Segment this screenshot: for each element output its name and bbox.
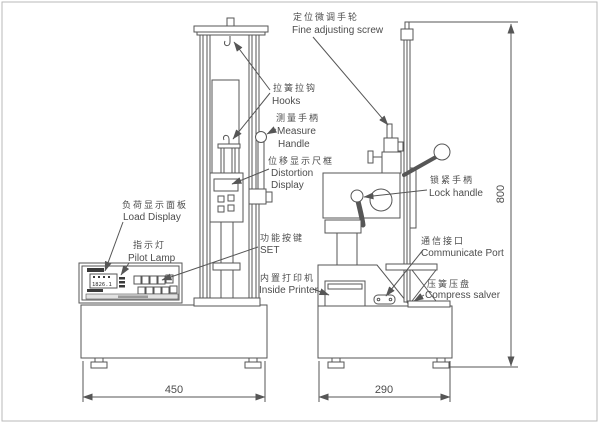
- dim-front-width: 450: [165, 384, 183, 396]
- pilot-lamp-icons: [119, 277, 125, 288]
- label-fine-adjusting-zh: 定位微调手轮: [293, 11, 359, 22]
- load-display-value: 1826.1: [92, 282, 112, 288]
- load-display-screen: 1826.1: [90, 274, 117, 288]
- column-top-collar: [401, 29, 413, 40]
- top-cap-plate: [194, 26, 268, 32]
- lower-spindle-2: [221, 270, 233, 298]
- label-lock-handle-zh: 锁紧手柄: [430, 174, 474, 185]
- load-sensor-cylinder: [221, 148, 235, 173]
- label-inside-printer-zh: 内置打印机: [260, 272, 315, 283]
- top-knob: [227, 18, 234, 26]
- column-rack: [410, 168, 416, 228]
- label-fine-adjusting-en: Fine adjusting screw: [292, 25, 384, 36]
- label-compress-salver-zh: 压簧压盘: [427, 278, 471, 289]
- label-inside-printer-en: Inside Printer: [259, 285, 319, 296]
- printer-slot: [328, 284, 362, 289]
- spindle-cylinder: [337, 233, 357, 265]
- panel-model-label: [87, 289, 103, 292]
- label-compress-salver-en: Compress salver: [425, 290, 501, 301]
- label-distortion-display-en1: Distortion: [271, 168, 313, 179]
- top-cap-lip: [197, 32, 265, 35]
- t-handle[interactable]: [368, 151, 373, 163]
- label-pilot-lamp-en: Pilot Lamp: [128, 253, 176, 264]
- dim-side-width: 290: [375, 384, 393, 396]
- crosshead-plate: [213, 263, 240, 270]
- technical-drawing-page: 1826.1: [0, 0, 600, 424]
- label-load-display-zh: 负荷显示面板: [122, 199, 188, 210]
- distortion-display-screen: [214, 179, 238, 191]
- head-handwheel: [370, 189, 392, 211]
- label-load-display-en: Load Display: [123, 212, 181, 223]
- label-function-keys-zh: 功能按键: [260, 232, 304, 243]
- fine-adjusting-screw-part[interactable]: [387, 124, 392, 138]
- label-measure-handle-en1: Measure: [277, 126, 316, 137]
- side-base: [318, 306, 452, 358]
- label-function-keys-en: SET: [260, 245, 279, 256]
- column-pedestal: [194, 298, 260, 306]
- lower-spindle: [221, 222, 233, 263]
- label-distortion-display-zh: 位移显示尺框: [268, 155, 334, 166]
- label-measure-handle-zh: 测量手柄: [276, 112, 320, 123]
- measure-handle-ball: [256, 132, 267, 143]
- lower-hook-plate: [218, 144, 240, 148]
- label-communicate-port-en: Communicate Port: [421, 248, 504, 259]
- label-lock-handle-en: Lock handle: [429, 188, 483, 199]
- left-column: [200, 35, 210, 298]
- inside-printer-unit: [325, 281, 365, 306]
- control-panel: 1826.1: [79, 263, 182, 303]
- feed-lever-ball[interactable]: [434, 144, 450, 160]
- panel-brand-label: [87, 268, 104, 272]
- label-distortion-display-en2: Display: [271, 180, 304, 191]
- compress-salver-plate: [408, 301, 450, 307]
- label-hooks-zh: 拉簧拉钩: [273, 82, 317, 93]
- measure-handle-rod: [258, 142, 264, 189]
- label-measure-handle-en2: Handle: [278, 139, 310, 150]
- label-pilot-lamp-zh: 指示灯: [133, 239, 166, 250]
- distortion-display-unit: [210, 173, 243, 222]
- panel-strip-text: [118, 296, 148, 299]
- spring-tester-diagram: 1826.1: [0, 0, 600, 424]
- column-top-rod: [405, 22, 409, 29]
- label-hooks-en: Hooks: [272, 96, 300, 107]
- spindle-collar: [325, 220, 361, 233]
- communicate-port-connector[interactable]: [374, 295, 395, 304]
- lock-handle-ball[interactable]: [351, 190, 363, 202]
- dim-height: 800: [495, 185, 507, 203]
- front-base: [81, 305, 267, 358]
- label-communicate-port-zh: 通信接口: [421, 235, 465, 246]
- main-column: [404, 29, 410, 302]
